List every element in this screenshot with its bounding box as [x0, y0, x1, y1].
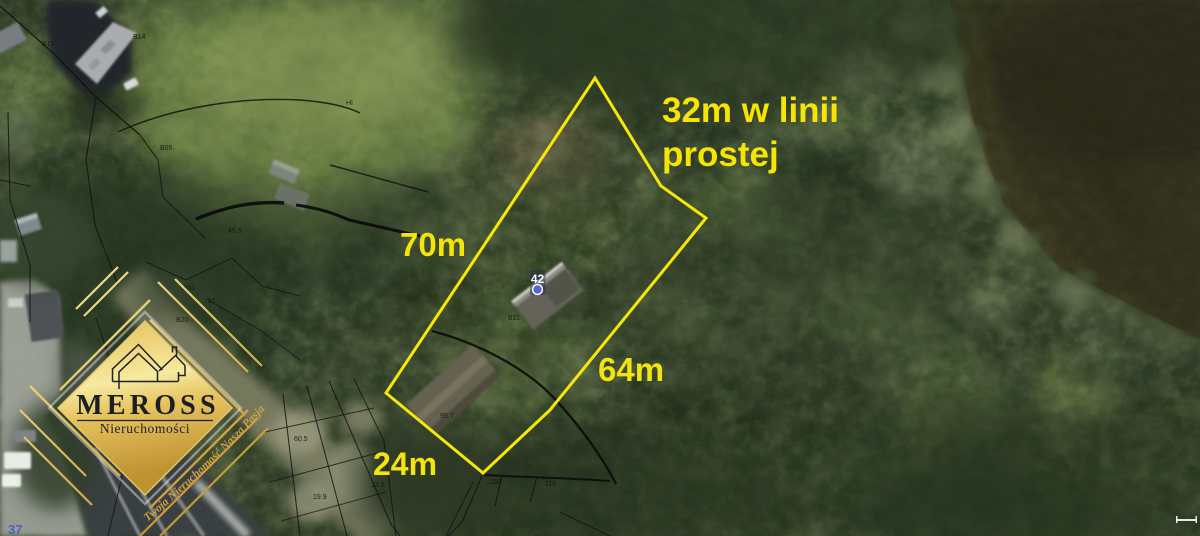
- svg-text:MEROSS: MEROSS: [76, 390, 219, 421]
- svg-text:110: 110: [545, 481, 556, 488]
- svg-text:60.5: 60.5: [294, 436, 308, 443]
- svg-text:19.9: 19.9: [313, 494, 327, 501]
- svg-text:B11: B11: [508, 315, 520, 322]
- svg-text:HI: HI: [346, 100, 353, 107]
- svg-text:B05: B05: [160, 145, 173, 152]
- svg-text:45.3: 45.3: [228, 228, 242, 235]
- svg-text:Nieruchomości: Nieruchomości: [100, 421, 190, 436]
- svg-text:751: 751: [204, 298, 216, 305]
- svg-text:64m: 64m: [598, 351, 664, 388]
- svg-text:prostej: prostej: [662, 135, 779, 174]
- svg-text:24m: 24m: [373, 446, 437, 482]
- svg-text:B20: B20: [176, 317, 189, 324]
- svg-text:37: 37: [8, 522, 22, 536]
- svg-text:42: 42: [531, 272, 545, 286]
- svg-text:B15: B15: [42, 41, 55, 48]
- svg-text:B14: B14: [133, 34, 146, 41]
- svg-text:150: 150: [489, 479, 501, 486]
- svg-text:13.9: 13.9: [371, 482, 385, 489]
- svg-text:95.7: 95.7: [440, 413, 454, 420]
- svg-text:70m: 70m: [400, 226, 466, 263]
- svg-text:32m w linii: 32m w linii: [662, 91, 839, 130]
